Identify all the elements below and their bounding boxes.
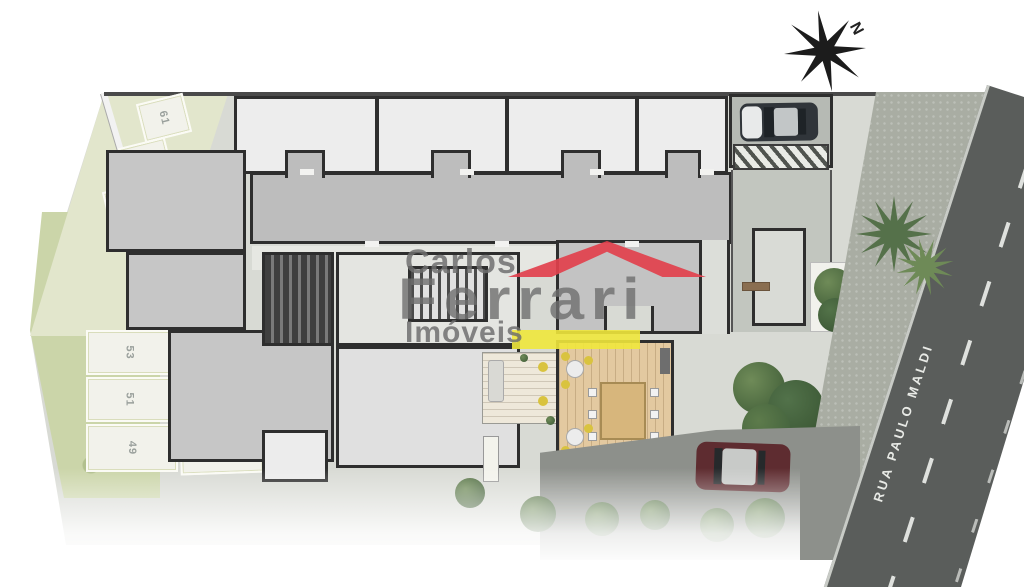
parking-space: 61 xyxy=(136,93,192,143)
door-gap xyxy=(300,169,314,175)
deck-lounger xyxy=(488,360,504,402)
left-block-upper xyxy=(106,150,246,252)
party-stool xyxy=(561,352,570,361)
deck-plant xyxy=(520,354,528,362)
parking-space: 49 xyxy=(86,424,178,472)
door-gap xyxy=(365,241,379,247)
party-chair xyxy=(650,388,659,397)
deck-plant xyxy=(546,416,555,425)
bottom-fade xyxy=(0,468,800,587)
site-plan-image: { "scene": {"type": "architectural-site-… xyxy=(0,0,1024,587)
unit-divider-wall xyxy=(635,96,639,174)
unit-row-lower xyxy=(250,172,732,244)
party-chair xyxy=(588,388,597,397)
party-table xyxy=(600,382,646,440)
party-chair xyxy=(588,410,597,419)
door-gap xyxy=(460,169,474,175)
party-stool xyxy=(584,356,593,365)
door-gap xyxy=(590,169,604,175)
unit-divider-wall xyxy=(505,96,509,174)
watermark-word-imoveis: Imóveis xyxy=(405,316,524,350)
party-chair xyxy=(650,410,659,419)
deck-chair xyxy=(538,396,548,406)
unit-divider-wall xyxy=(375,96,379,174)
left-block-mid xyxy=(126,252,246,330)
sideboard xyxy=(660,348,670,374)
party-chair xyxy=(588,432,597,441)
round-table xyxy=(566,428,584,446)
elevator-core xyxy=(262,252,334,346)
deck-chair xyxy=(538,362,548,372)
party-stool xyxy=(561,380,570,389)
balcony-notch xyxy=(665,150,701,178)
round-table xyxy=(566,360,584,378)
party-stool xyxy=(584,424,593,433)
door-gap xyxy=(625,241,639,247)
